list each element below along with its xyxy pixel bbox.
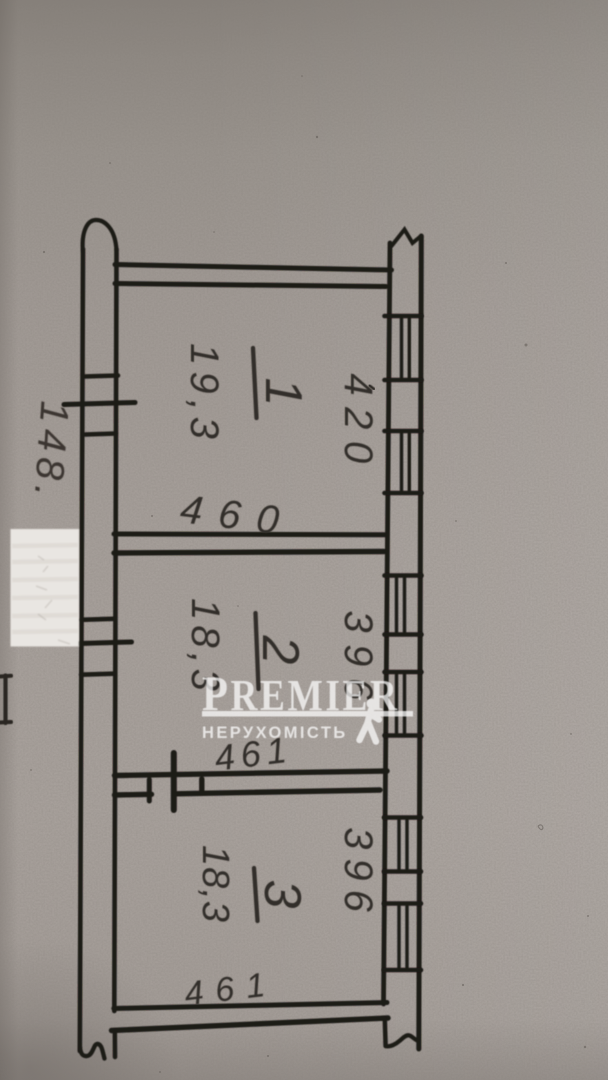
- svg-text:396: 396: [336, 827, 380, 921]
- svg-text:148.: 148.: [25, 400, 76, 505]
- svg-text:18,3: 18,3: [194, 845, 236, 923]
- svg-text:НЕРУХОМІСТЬ: НЕРУХОМІСТЬ: [202, 724, 348, 742]
- svg-text:19,3: 19,3: [182, 343, 226, 445]
- svg-text:3: 3: [253, 880, 311, 909]
- svg-text:1: 1: [254, 378, 312, 407]
- svg-text:2: 2: [251, 635, 309, 665]
